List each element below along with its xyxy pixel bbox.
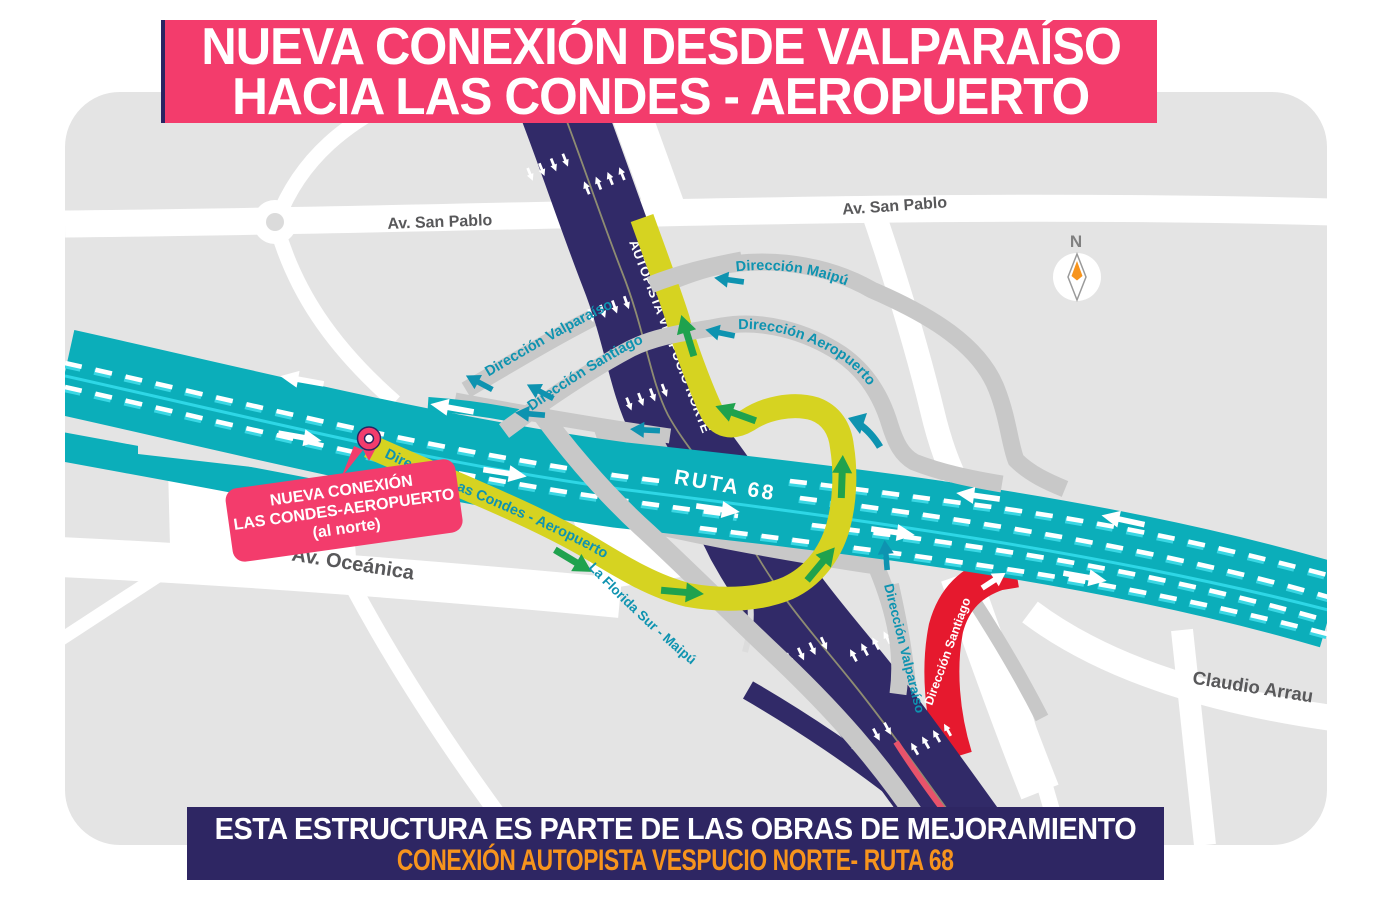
svg-text:N: N — [1070, 232, 1082, 251]
